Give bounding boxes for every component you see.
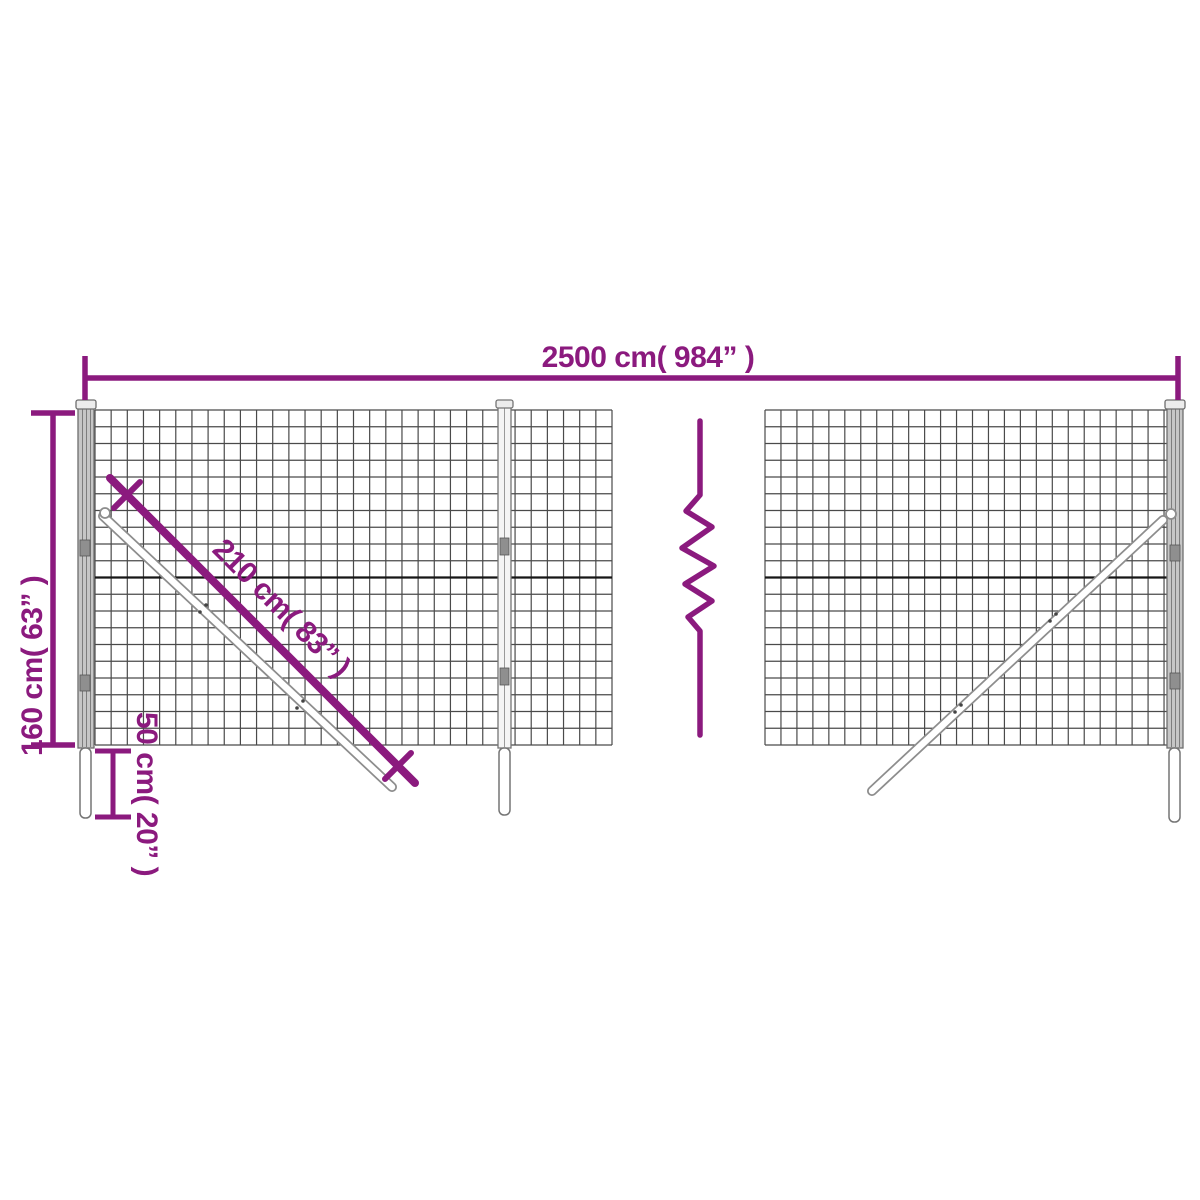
right-ground-stake xyxy=(1169,748,1180,822)
middle-post-clamp xyxy=(500,668,509,685)
right-diagonal-brace xyxy=(872,509,1176,791)
right-post-clamp xyxy=(1170,545,1180,561)
diagram-canvas: 2500 cm( 984” ) 160 cm( 63” ) 210 cm( 83… xyxy=(0,0,1200,1200)
right-post-clamp xyxy=(1170,673,1180,689)
stake-dimension-label: 50 cm( 20” ) xyxy=(130,712,163,876)
height-dimension-label: 160 cm( 63” ) xyxy=(16,576,49,756)
middle-post-cap xyxy=(496,400,513,408)
annotation-lines xyxy=(31,356,1178,817)
middle-post xyxy=(496,400,513,748)
right-post-cap xyxy=(1165,400,1185,409)
brace-eyelet xyxy=(1166,509,1176,519)
break-symbol xyxy=(682,421,714,735)
brace-eyelet xyxy=(100,508,110,518)
left-post-clamp xyxy=(80,540,90,556)
left-post-cap xyxy=(76,400,96,409)
width-dimension-label: 2500 cm( 984” ) xyxy=(542,341,755,374)
left-ground-stake xyxy=(80,748,91,818)
middle-post-clamp xyxy=(500,538,509,555)
middle-ground-stake xyxy=(499,748,510,815)
fence-dimension-diagram: 2500 cm( 984” ) 160 cm( 63” ) 210 cm( 83… xyxy=(0,0,1200,1200)
left-post xyxy=(76,400,96,748)
ground-stakes xyxy=(80,748,1180,822)
right-post xyxy=(1165,400,1185,748)
left-post-clamp xyxy=(80,675,90,691)
stake-dimension-line xyxy=(95,751,131,817)
